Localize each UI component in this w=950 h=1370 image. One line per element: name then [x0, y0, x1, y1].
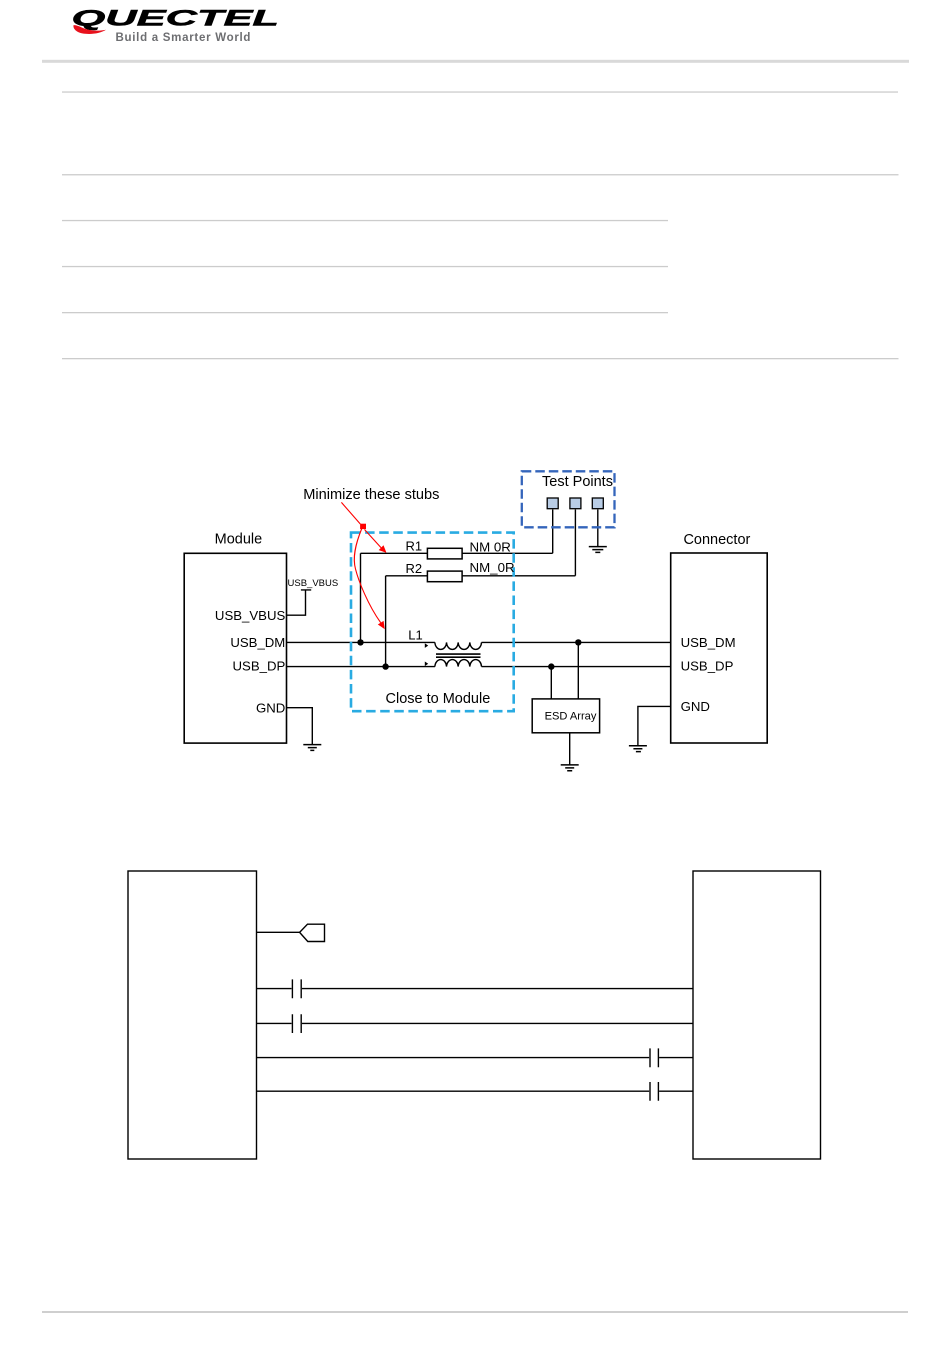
svg-text:R2: R2: [405, 561, 422, 576]
svg-text:QUECTEL: QUECTEL: [72, 6, 279, 31]
svg-text:Module: Module: [215, 532, 263, 548]
svg-text:GND: GND: [681, 699, 710, 714]
svg-text:GND: GND: [256, 700, 285, 715]
svg-text:NM_0R: NM_0R: [470, 560, 515, 575]
svg-text:USB_DP: USB_DP: [233, 659, 286, 674]
svg-text:USB_VBUS: USB_VBUS: [215, 608, 286, 623]
svg-text:NM 0R: NM 0R: [470, 540, 511, 555]
svg-text:USB_DP: USB_DP: [681, 659, 734, 674]
svg-text:Minimize these stubs: Minimize these stubs: [303, 487, 439, 503]
svg-text:Close to Module: Close to Module: [386, 691, 491, 707]
svg-text:Connector: Connector: [683, 532, 750, 548]
svg-text:Build a Smarter World: Build a Smarter World: [116, 32, 252, 44]
svg-text:USB_VBUS: USB_VBUS: [288, 578, 339, 589]
svg-text:R1: R1: [405, 538, 422, 553]
svg-text:ESD Array: ESD Array: [545, 711, 597, 723]
svg-text:USB_DM: USB_DM: [681, 635, 736, 650]
svg-text:USB_DM: USB_DM: [230, 635, 285, 650]
svg-text:Test Points: Test Points: [542, 474, 613, 490]
svg-text:L1: L1: [408, 628, 422, 643]
